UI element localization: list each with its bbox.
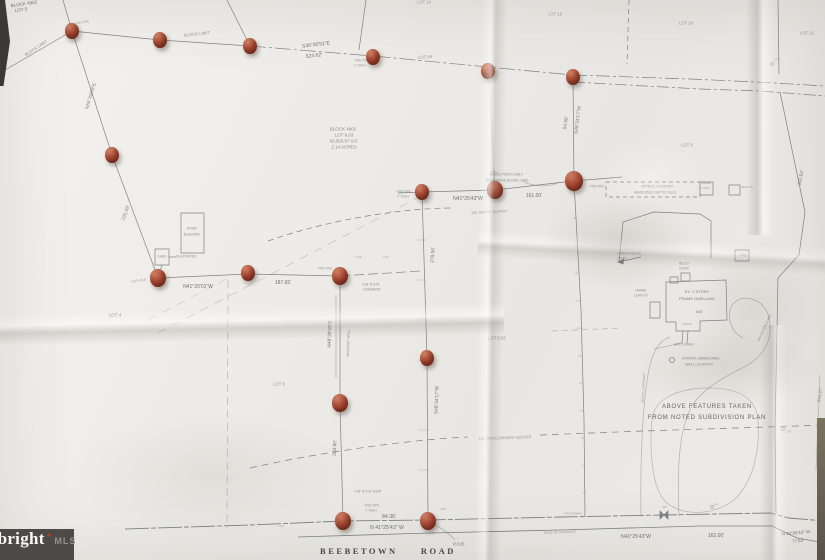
driveway-right (678, 371, 736, 516)
well-circle (670, 358, 675, 363)
photo-edge-right (817, 418, 825, 560)
fence-note-leader (523, 182, 558, 186)
pob-leader (432, 523, 455, 540)
lot-line-227 (227, 280, 228, 528)
block-limit-diagonal (0, 31, 72, 73)
coop-tr-rect (700, 182, 713, 195)
exist-building-rect (181, 213, 204, 253)
road-south-edge (298, 526, 825, 543)
north-boundary-upper (63, 0, 250, 46)
old-fence-line-2 (148, 276, 232, 320)
old-fence-line (158, 194, 425, 333)
north-boundary-mid (250, 46, 573, 75)
vertical-masonry (340, 276, 343, 520)
fence-line-east (574, 181, 585, 517)
line-n412543 (398, 177, 622, 193)
top-dash-line (627, 0, 629, 64)
shed-tr-rect (735, 250, 749, 261)
up-symbol-1 (771, 63, 774, 66)
line-n412001-dash (340, 271, 421, 276)
plat-linework (0, 0, 825, 560)
driveway-loop (729, 298, 770, 371)
shed-rect (155, 249, 169, 265)
bilco-rect (681, 273, 690, 281)
leanto-tr-rect (729, 185, 740, 195)
survey-paper: BLOCK 4902LOT 5FND PIPEBLOCK LIMITBLOCK … (0, 0, 825, 560)
segment-9498 (573, 80, 574, 181)
top-stub-2 (359, 0, 366, 50)
photo-background: BLOCK 4902LOT 5FND PIPEBLOCK LIMITBLOCK … (0, 0, 825, 560)
post-symbol (491, 168, 497, 186)
house-outline (666, 280, 727, 331)
water-valve-bowtie (660, 511, 668, 519)
vertical-270 (422, 192, 428, 520)
road-north-edge (125, 513, 825, 529)
leanto-rect (650, 302, 660, 318)
house-fence (619, 212, 711, 263)
brightmls-logo-text: bright (0, 529, 45, 549)
brightmls-star-icon: ✦ (46, 531, 53, 540)
right-vertical-top (778, 0, 779, 74)
note-blob (651, 388, 758, 512)
fence-posts (574, 190, 585, 510)
top-stub-1 (227, 0, 250, 46)
driveway-left (641, 337, 670, 516)
dash-line-mid (552, 328, 622, 331)
fence-arrowhead (618, 259, 624, 264)
development-buffer-left (250, 437, 468, 468)
brick-walk (682, 331, 688, 343)
line-n412001 (158, 274, 340, 278)
right-diagonal (780, 92, 805, 212)
west-boundary (72, 31, 158, 278)
right-boundary (775, 212, 805, 514)
septic-buffer-arc (268, 208, 452, 241)
up-symbol-3 (711, 506, 714, 509)
septic-field-rect (606, 182, 700, 197)
shed-connector (159, 265, 162, 275)
brightmls-mls-text: MLS (54, 536, 76, 546)
up-symbol-2 (782, 428, 785, 431)
brightmls-watermark: bright ✦ MLS (0, 529, 74, 560)
